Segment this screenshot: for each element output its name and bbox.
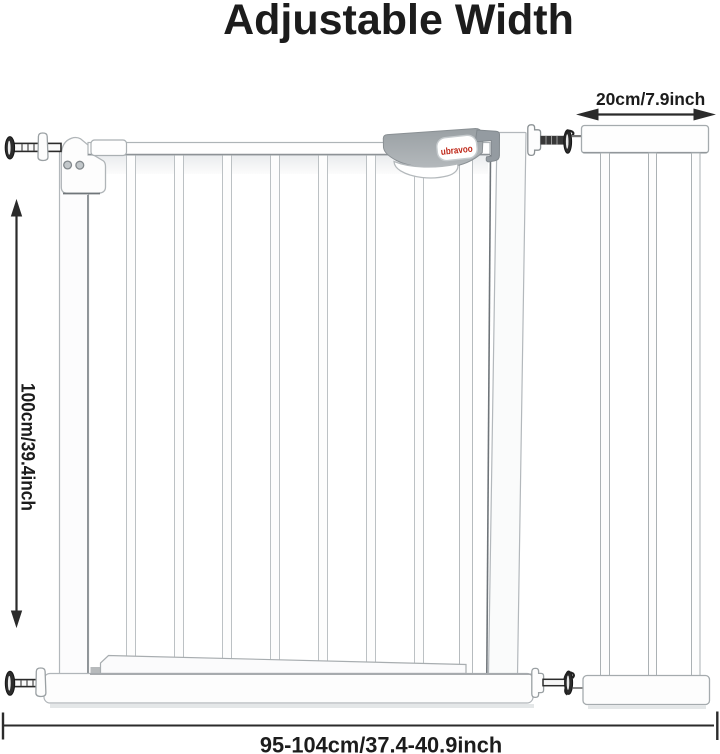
svg-text:100cm/39.4inch: 100cm/39.4inch: [16, 383, 38, 511]
svg-text:95-104cm/37.4-40.9inch: 95-104cm/37.4-40.9inch: [260, 733, 502, 754]
svg-text:20cm/7.9inch: 20cm/7.9inch: [596, 89, 705, 109]
svg-text:Adjustable Width: Adjustable Width: [223, 0, 574, 44]
